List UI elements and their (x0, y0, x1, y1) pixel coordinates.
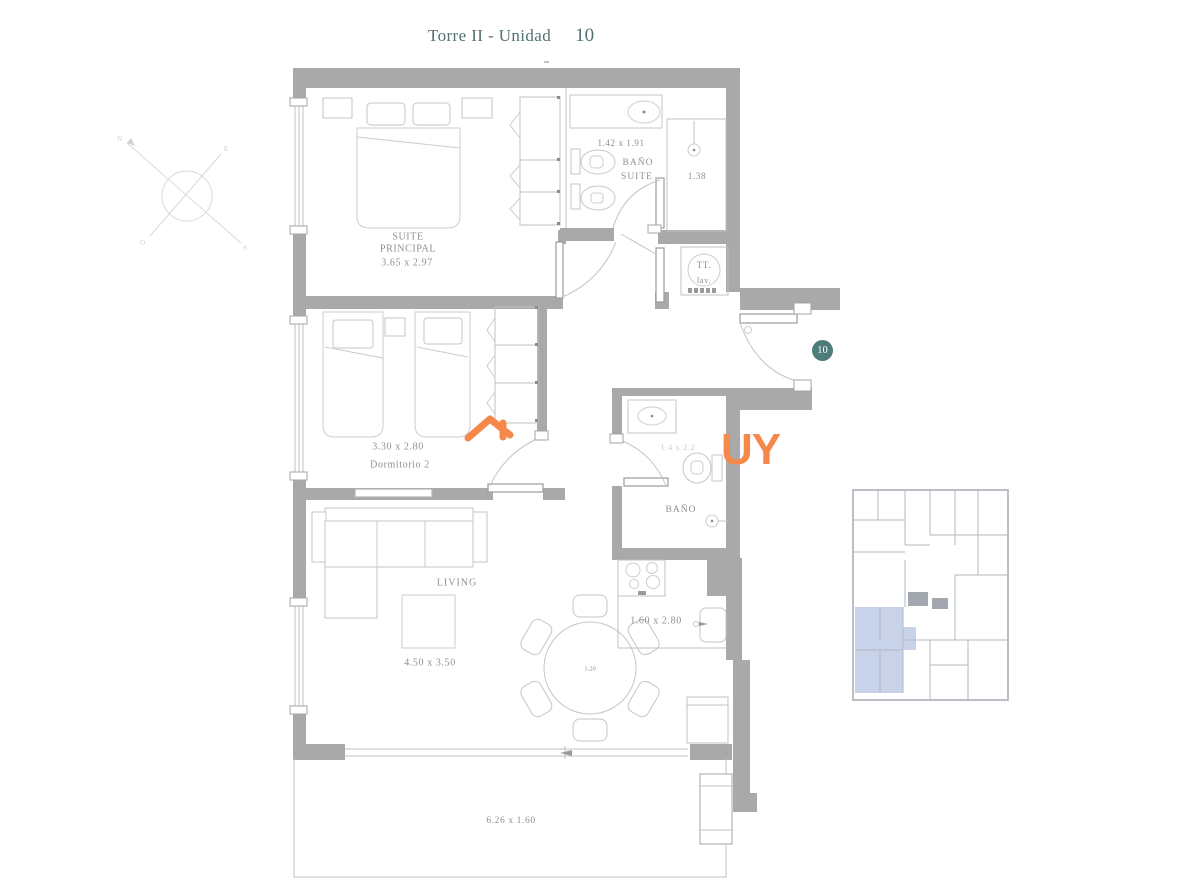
laundry-tt (621, 234, 728, 302)
suite-principal-dimension: 3.65 x 2.97 (381, 258, 433, 269)
dining-table-dimension: 1.20 (584, 666, 595, 673)
door-bano-suite (613, 178, 664, 233)
shower-dimension: 1.38 (688, 171, 706, 181)
title-unit-number: 10 (575, 25, 594, 47)
wardrobe-suite (510, 96, 560, 225)
dormitorio2-furniture (323, 242, 616, 497)
bidet-icon (571, 184, 615, 210)
svg-text:S: S (243, 244, 247, 252)
page-title: Torre II - Unidad 10 (428, 25, 594, 47)
fridge-icon (687, 697, 728, 743)
door-tt (621, 234, 664, 302)
dormitorio2-label: Dormitorio 2 (370, 460, 430, 471)
kitchen-sink-icon (694, 608, 727, 642)
window-suite (292, 104, 307, 230)
sofa (312, 508, 487, 618)
entry-door (740, 303, 811, 391)
door-bano2 (610, 434, 668, 486)
shelf (355, 489, 432, 497)
wardrobe-dorm2 (487, 306, 538, 423)
living-label: LIVING (437, 578, 477, 589)
uy-watermark: UY (721, 428, 780, 472)
svg-text:E: E (224, 145, 228, 153)
bano-suite-label-1: BAÑO (623, 158, 654, 168)
bano2-dimension: 1.4 x 2.2 (660, 442, 695, 452)
bano-suite-dimension: 1.42 x 1.91 (597, 138, 644, 148)
toilet-icon (571, 149, 615, 174)
bano-suite-label-2: SUITE (621, 172, 653, 182)
suite-principal-label-1: SUITE (392, 232, 423, 243)
shower2-icon (706, 515, 728, 527)
sliding-window-terrace (345, 746, 688, 759)
bano2-label: BAÑO (666, 505, 697, 515)
tt-label: TT. (697, 260, 711, 270)
dormitorio2-dimension: 3.30 x 2.80 (372, 442, 424, 453)
unit-number-badge: 10 (812, 340, 833, 361)
toilet2-icon (683, 453, 722, 483)
coffee-table (402, 595, 455, 648)
living-dimension: 4.50 x 3.50 (404, 658, 456, 669)
roof-watermark-icon (468, 419, 510, 438)
nightstand (385, 318, 405, 336)
compass-rose-icon: N E S O (117, 135, 247, 252)
door-dorm2 (488, 431, 548, 492)
kitchen-dimension: 1.60 x 2.80 (630, 616, 682, 627)
window-dorm2 (292, 322, 307, 476)
compass-north-letter: N (117, 135, 122, 143)
svg-text:O: O (140, 239, 145, 247)
suite-principal-furniture (323, 88, 566, 228)
title-text: Torre II - Unidad (428, 26, 551, 46)
key-plan (853, 490, 1008, 700)
door-suite-room (556, 242, 616, 298)
window-living (292, 602, 307, 710)
title-mark (544, 61, 549, 63)
planter-box (700, 774, 732, 844)
lav-label: lav. (697, 275, 711, 285)
terrace-dimension: 6.26 x 1.60 (486, 816, 535, 826)
floor-plan-page: N E S O (0, 0, 1200, 894)
suite-principal-label-2: PRINCIPAL (380, 244, 436, 255)
cooktop-icon (618, 560, 665, 596)
floor-plan-drawing: N E S O (0, 0, 1200, 894)
living-furniture (312, 508, 662, 741)
